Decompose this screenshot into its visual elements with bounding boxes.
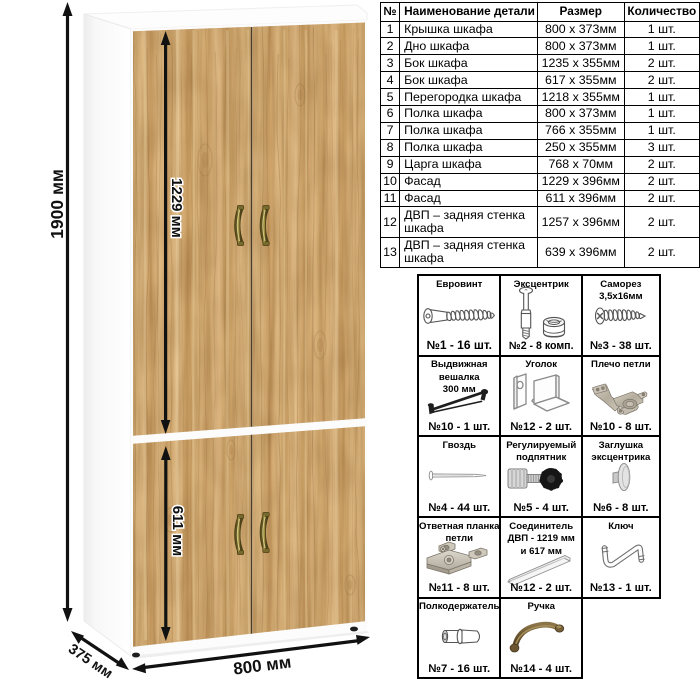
svg-text:375 мм: 375 мм [65, 641, 115, 682]
svg-text:1900 мм: 1900 мм [47, 169, 67, 239]
svg-text:611 мм: 611 мм [169, 506, 186, 557]
svg-text:1229 мм: 1229 мм [168, 178, 185, 238]
